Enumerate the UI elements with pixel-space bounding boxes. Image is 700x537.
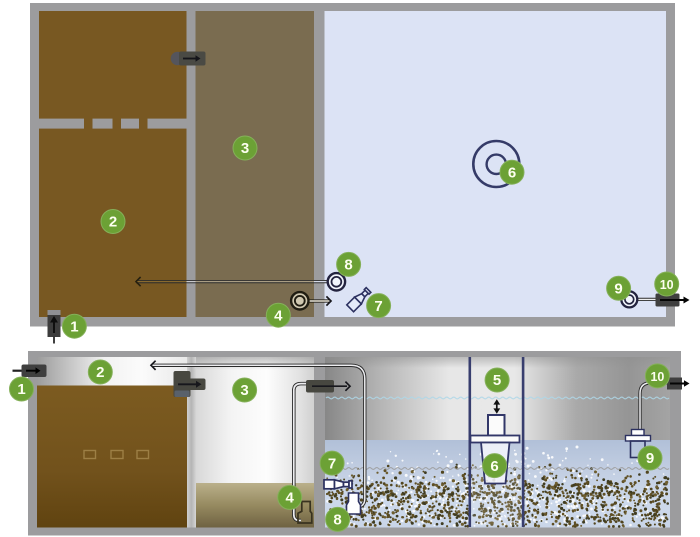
svg-text:1: 1 (17, 381, 25, 398)
svg-text:2: 2 (109, 214, 117, 231)
svg-text:10: 10 (660, 278, 674, 292)
svg-text:10: 10 (650, 370, 664, 384)
svg-text:9: 9 (646, 450, 654, 467)
svg-text:7: 7 (328, 455, 336, 472)
svg-text:6: 6 (490, 458, 498, 475)
svg-text:3: 3 (240, 382, 248, 399)
svg-text:8: 8 (344, 257, 352, 274)
svg-text:5: 5 (493, 372, 501, 389)
svg-text:7: 7 (374, 298, 382, 315)
svg-text:2: 2 (96, 364, 104, 381)
svg-text:6: 6 (508, 164, 516, 181)
svg-text:4: 4 (274, 307, 283, 324)
svg-text:8: 8 (333, 512, 341, 529)
svg-text:9: 9 (614, 281, 622, 298)
svg-text:3: 3 (241, 140, 249, 157)
svg-text:4: 4 (286, 490, 295, 507)
svg-text:1: 1 (70, 318, 78, 335)
